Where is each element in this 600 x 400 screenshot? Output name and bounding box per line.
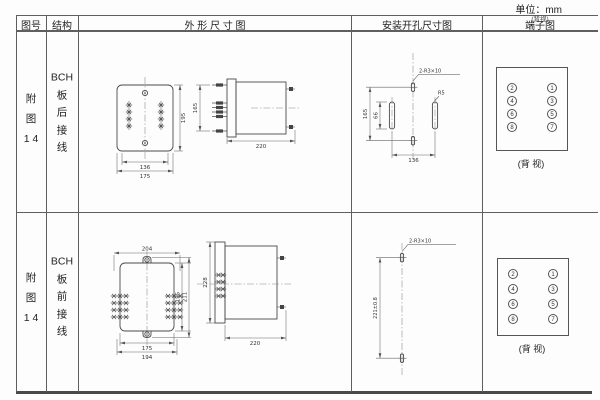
terminal-left-column: 2 4 6 8 [507,83,517,132]
dim-front-width-outer-row1: 175 [140,174,151,180]
terminal-diagram-row2: 2 4 6 8 1 3 5 7 (背 视) [483,213,597,393]
mounting-drawing-row2: 221±0.8 2-R3×10 [352,213,482,393]
grid-line-left [16,15,17,392]
mount-slot-label-row2: 2-R3×10 [409,239,431,245]
dim-front-width-inner-row1: 136 [140,165,151,171]
terminal-pin: 5 [548,299,558,309]
dim-front-height-row1: 195 [181,112,187,123]
outline-svg-row1: 136 175 195 165 220 [79,31,351,212]
grid-line-col1 [46,15,47,392]
relay-side-view: 165 220 [193,79,301,150]
terminal-pin: 4 [508,284,518,294]
outline-drawing-row1: 136 175 195 165 220 [79,31,351,212]
terminal-right-column: 1 3 5 7 [547,83,557,132]
header-structure: 结构 [52,17,72,32]
mount-radius-label-row1: R5 [438,91,445,97]
outline-svg-row2: 204 195 211 [79,213,351,393]
header-terminal: 端子图 [525,17,555,32]
terminal-left-column: 2 4 6 8 [508,269,518,324]
dim-mount-height-row1: 165 [363,108,369,119]
terminal-pin: 6 [507,109,517,119]
terminal-pin: 7 [547,122,557,132]
relay-front-view: 136 175 195 [117,77,187,180]
terminal-pin: 4 [507,96,517,106]
terminal-pin: 8 [508,314,518,324]
dim-side-height-row2: 228 [203,277,209,288]
terminal-caption-row1: (背 视) [496,157,566,170]
header-mounting: 安装开孔尺寸图 [382,17,452,32]
relay-front-view: 204 195 211 [111,247,191,362]
dim-mount-height-row2: 221±0.8 [373,297,379,319]
terminal-box-row1: 2 4 6 8 1 3 5 7 [496,67,568,151]
drawing-sheet: 单位：mm 图号 结构 外 形 尺 寸 图 安装开孔尺寸图 (背视) 端子图 附… [0,0,600,400]
dim-front-height-inner-row2: 195 [176,291,182,302]
dim-side-depth-row2: 220 [250,341,261,347]
terminal-pin: 2 [507,83,517,93]
terminal-caption-row2: (背 视) [497,342,567,355]
terminal-diagram-row1: 2 4 6 8 1 3 5 7 (背 视) [483,31,597,212]
dim-mount-width-row1: 136 [408,158,419,164]
mount-slot-label-row1: 2-R3×10 [419,69,441,75]
terminal-pin: 5 [547,109,557,119]
dim-side-height-row1: 165 [193,102,199,113]
terminal-pin: 1 [548,269,558,279]
grid-line-top [16,15,598,16]
figure-number-row2: 附 图 1 4 [24,268,39,328]
dim-front-width-outer-row2: 194 [142,355,153,361]
mounting-drawing-row1: 165 66 136 2-R3×10 R5 [352,31,482,212]
terminal-pin: 3 [548,284,558,294]
mounting-svg-row1: 165 66 136 2-R3×10 R5 [352,31,482,212]
structure-row1: BCH 板 后 接 线 [51,69,73,157]
header-figure: 图号 [21,17,41,32]
dim-mount-slot-length-row1: 66 [374,112,380,119]
mounting-svg-row2: 221±0.8 2-R3×10 [352,213,482,393]
dim-front-width-inner-row2: 175 [142,346,153,352]
relay-side-view: 228 220 [197,242,291,347]
figure-number-row1: 附 图 1 4 [24,89,39,149]
terminal-box-row2: 2 4 6 8 1 3 5 7 [497,258,569,336]
dim-front-height-outer-row2: 211 [183,292,189,303]
terminal-pin: 3 [547,96,557,106]
terminal-right-column: 1 3 5 7 [548,269,558,324]
dim-side-depth-row1: 220 [256,144,267,150]
terminal-pin: 2 [508,269,518,279]
terminal-pin: 7 [548,314,558,324]
outline-drawing-row2: 204 195 211 [79,213,351,393]
header-outline: 外 形 尺 寸 图 [184,17,245,32]
terminal-pin: 6 [508,299,518,309]
terminal-pin: 8 [507,122,517,132]
structure-row2: BCH 板 前 接 线 [51,253,73,341]
terminal-pin: 1 [547,83,557,93]
